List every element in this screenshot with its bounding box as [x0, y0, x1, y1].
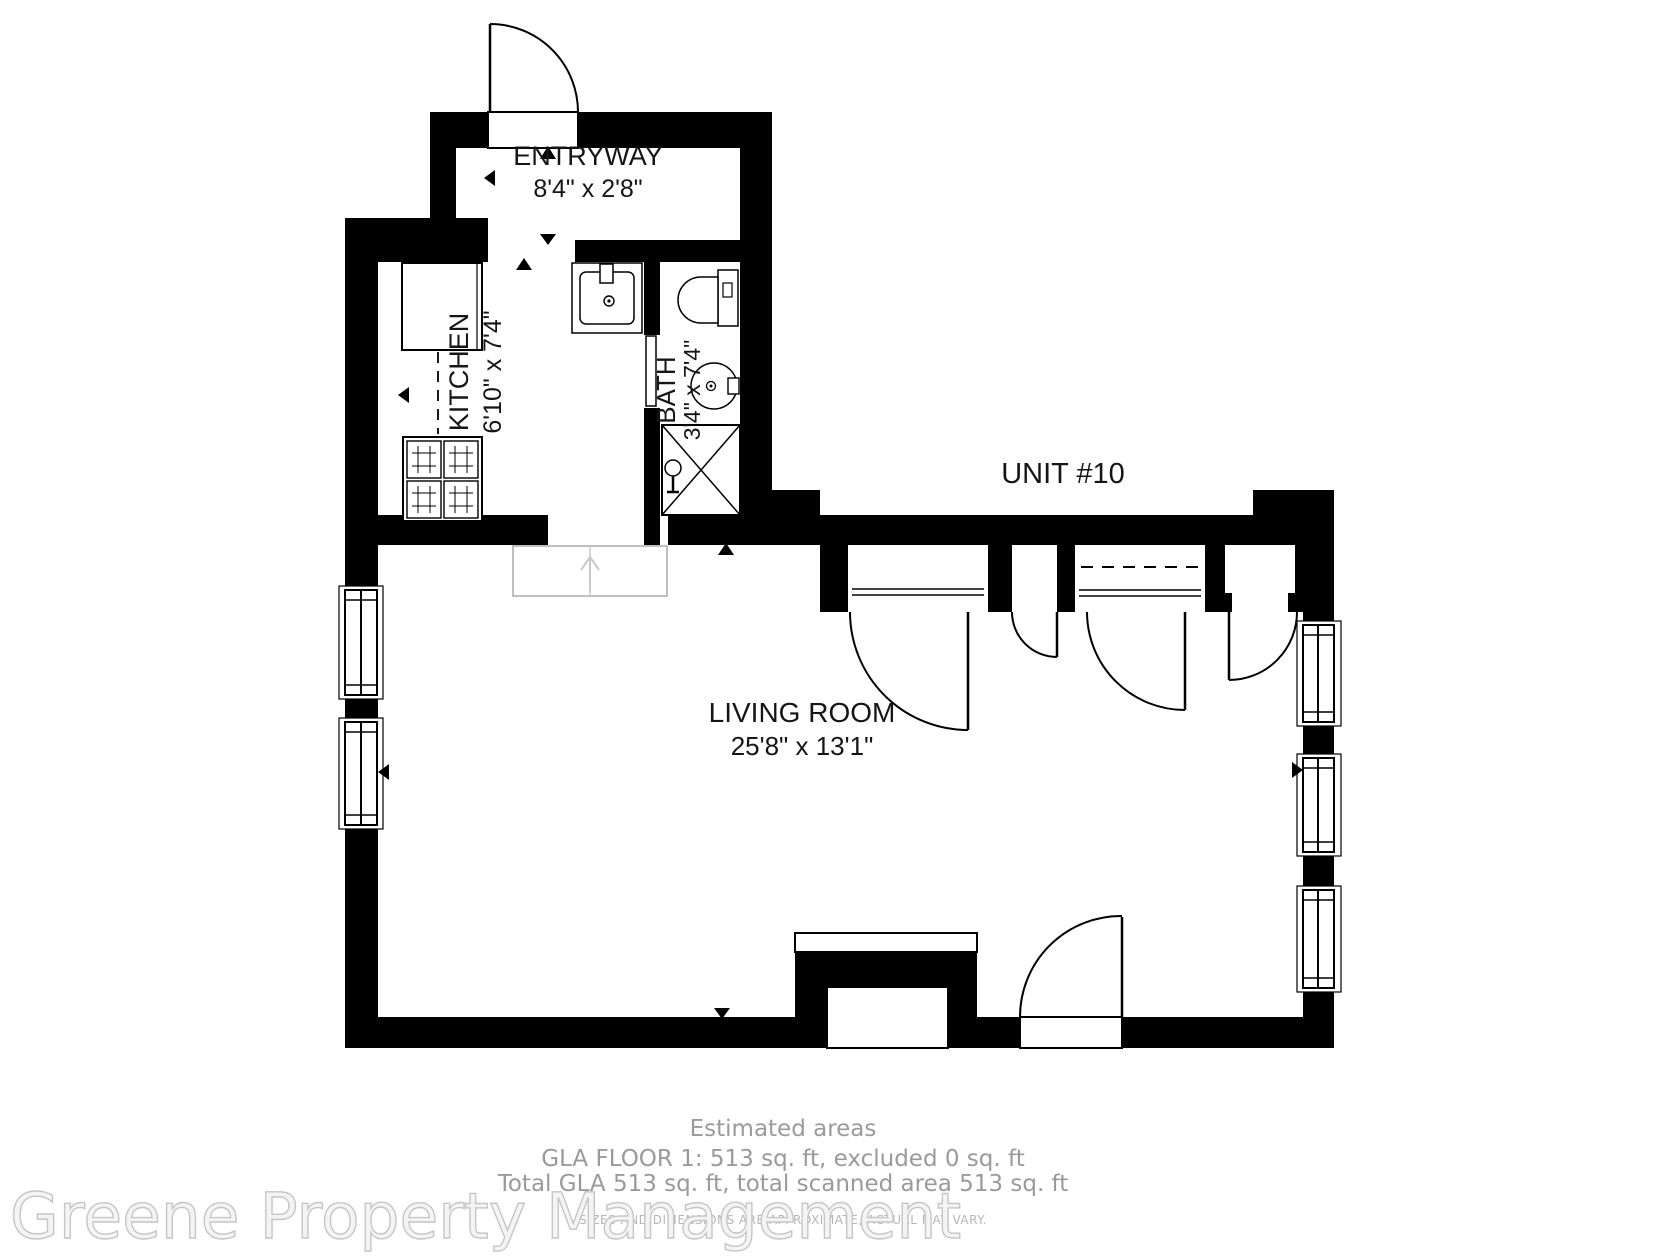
window [1297, 754, 1341, 856]
chimney-ledge [795, 933, 977, 952]
window [1297, 886, 1341, 992]
wall-segment [575, 240, 740, 262]
closet-niche [1012, 545, 1057, 612]
closet-niche [1232, 593, 1288, 612]
marker-left [398, 387, 409, 403]
kitchen-dims: 6'10" x 7'4" [479, 310, 507, 433]
marker-left [484, 170, 495, 186]
footer: SIZES AND DIMENSIONS ARE APPROXIMATE, AC… [10, 1116, 1068, 1253]
closet-door [1012, 612, 1057, 657]
faucet [728, 378, 739, 394]
closet-door [1229, 612, 1297, 680]
living-room-door [1020, 916, 1122, 1048]
door-swing-arc [1020, 916, 1122, 1017]
kitchen-sink [572, 263, 642, 333]
wall-segment [644, 408, 660, 545]
door-swing-arc [1012, 612, 1057, 657]
living-room-dims: 25'8" x 13'1" [731, 731, 874, 761]
window [339, 586, 383, 699]
wall-segment [345, 218, 378, 548]
wall-segment [740, 112, 772, 545]
wall-segment [820, 515, 1303, 545]
marker-down [540, 234, 556, 245]
unit-label: UNIT #10 [1001, 458, 1125, 490]
stove [403, 437, 482, 521]
closet-door [1087, 612, 1185, 710]
entryway-label: ENTRYWAY [513, 141, 663, 171]
wall-segment [1253, 490, 1334, 517]
window [1297, 621, 1341, 726]
floor-plan-svg: ENTRYWAY 8'4" x 2'8" KITCHEN 6'10" x 7'4… [0, 0, 1680, 1260]
bath-label: BATH [651, 356, 681, 423]
door-opening [1020, 1017, 1122, 1048]
window [339, 718, 383, 829]
wall-segment [644, 262, 660, 335]
entry-step [513, 546, 667, 596]
wall-segment [668, 515, 772, 545]
closet-niche [1225, 545, 1295, 593]
entry-door [488, 24, 578, 148]
total-gla-line: Total GLA 513 sq. ft, total scanned area… [497, 1171, 1069, 1197]
closet-niche [1075, 545, 1205, 612]
faucet [600, 264, 613, 283]
kitchen-fixtures [402, 263, 642, 521]
living-room-label: LIVING ROOM [709, 697, 896, 728]
gla-floor-line: GLA FLOOR 1: 513 sq. ft, excluded 0 sq. … [541, 1146, 1024, 1172]
door-swing-arc [490, 24, 578, 112]
windows [339, 586, 1341, 992]
door-swing-arc [1087, 612, 1185, 710]
marker-up [516, 258, 532, 270]
toilet [678, 270, 738, 326]
door-swing-arc [1229, 612, 1297, 680]
estimated-areas-title: Estimated areas [690, 1116, 877, 1142]
entryway-dims: 8'4" x 2'8" [533, 175, 642, 203]
wall-segment [772, 490, 820, 545]
floor-plan-page: ENTRYWAY 8'4" x 2'8" KITCHEN 6'10" x 7'4… [0, 0, 1680, 1260]
wall-segment [430, 112, 456, 218]
closet-niche [848, 545, 988, 612]
kitchen-label: KITCHEN [444, 313, 474, 432]
bath-dims: 3'4" x 7'4" [679, 340, 705, 441]
chimney-recess [827, 987, 948, 1048]
